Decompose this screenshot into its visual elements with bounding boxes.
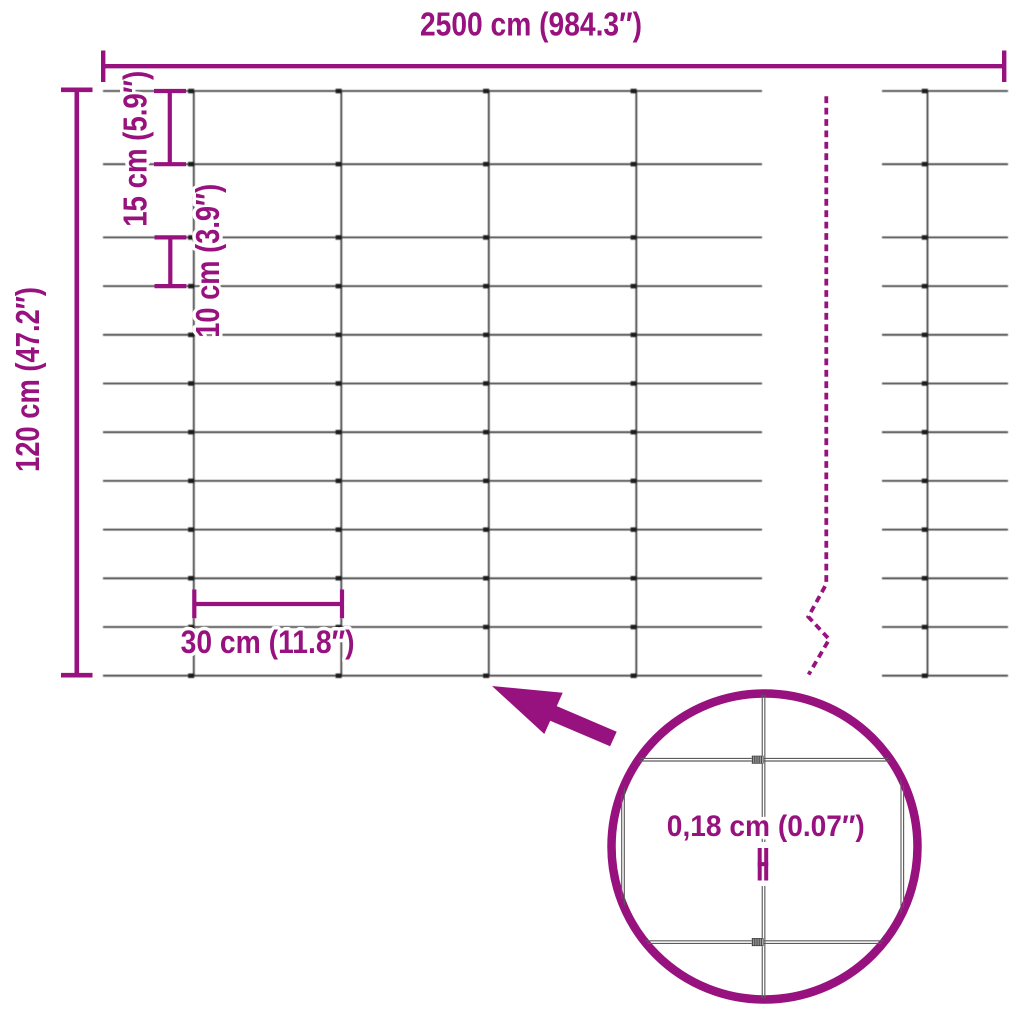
svg-text:30 cm (11.8″): 30 cm (11.8″) — [181, 624, 355, 660]
svg-text:2500 cm (984.3″): 2500 cm (984.3″) — [420, 6, 642, 43]
svg-text:10 cm (3.9″): 10 cm (3.9″) — [189, 184, 226, 338]
svg-text:0,18 cm (0.07″): 0,18 cm (0.07″) — [667, 810, 865, 843]
svg-text:120 cm (47.2″): 120 cm (47.2″) — [9, 287, 46, 472]
svg-text:15 cm (5.9″): 15 cm (5.9″) — [117, 71, 154, 227]
